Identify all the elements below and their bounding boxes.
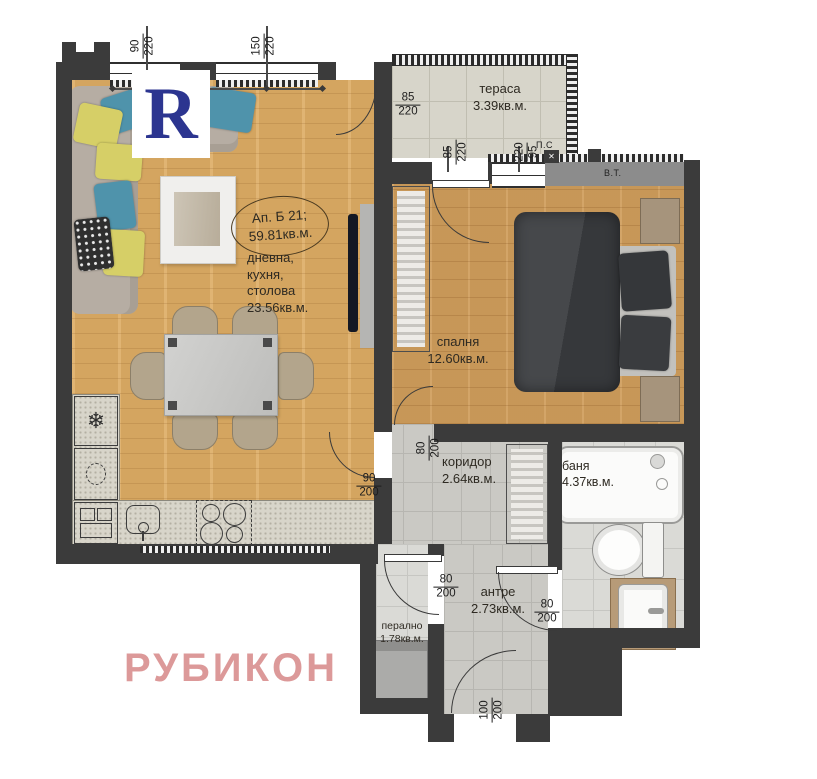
wall-top-a (56, 62, 112, 80)
dining-chair (130, 352, 166, 400)
living-label-line: дневна, (247, 250, 308, 267)
table-leg (263, 401, 272, 410)
nightstand (640, 198, 680, 244)
sofa-pillow (203, 86, 257, 133)
terrace-label: тераса 3.39кв.м. (440, 81, 560, 114)
toilet-tank (642, 522, 664, 578)
tv-unit (360, 204, 374, 348)
dim-living-door: 90200 (356, 473, 381, 500)
laundry-label: перално 1.78кв.м. (378, 620, 426, 647)
fridge-snowflake-icon: ❄ (87, 408, 105, 433)
washing-machine (374, 640, 428, 700)
floor-drain-icon: ✕ (544, 150, 559, 163)
dim-window-2: 150220 (251, 33, 278, 58)
wall-entrance-left (428, 714, 454, 742)
terrace-area: 3.39кв.м. (440, 98, 560, 115)
table-leg (168, 338, 177, 347)
burner-icon (202, 504, 220, 522)
dim-terrace-door: 85220 (395, 92, 420, 119)
terrace-door-opening (336, 62, 374, 80)
living-label-line: столова (247, 283, 308, 300)
wall-notch-cut (76, 42, 94, 52)
coffee-table-top (174, 192, 220, 246)
nightstand (640, 376, 680, 422)
oven (74, 502, 118, 544)
dining-chair (232, 414, 278, 450)
agency-logo-letter: R (144, 72, 197, 157)
wall-living-partition (374, 62, 392, 432)
toilet (592, 524, 646, 576)
living-room-label: дневна, кухня, столова 23.56кв.м. (247, 250, 308, 317)
dim-bedroom-door: 80200 (416, 435, 443, 460)
wall-right-outer (684, 160, 700, 648)
bedroom-area: 12.60кв.м. (412, 351, 504, 368)
bed-pillow (619, 315, 672, 372)
burner-icon (200, 522, 223, 545)
dim-terrace-window-1: 85220 (443, 139, 470, 164)
cooktop (196, 500, 252, 546)
bathroom-label: баня 4.37кв.м. (562, 458, 614, 490)
antre-name: антре (452, 584, 544, 601)
faucet-stem-icon (142, 531, 144, 541)
bathroom-name: баня (562, 458, 614, 474)
vent-shaft-label: В.Т. (604, 168, 622, 178)
dishwasher-icon (86, 463, 106, 485)
basin-faucet-icon (648, 608, 664, 614)
wall-bath-bottom (548, 628, 700, 648)
fridge: ❄ (74, 396, 118, 446)
dining-table (164, 334, 278, 416)
dim-window-1: 90220 (130, 33, 157, 58)
kitchen-sink (120, 502, 166, 542)
dining-chair (172, 414, 218, 450)
bedroom-label: спалня 12.60кв.м. (412, 334, 504, 367)
laundry-area: 1.78кв.м. (378, 633, 426, 646)
wall-bedroom-top-pier (392, 162, 432, 184)
apartment-area: 59.81кв.м. (248, 224, 313, 246)
floor-plan: ❄ (0, 0, 817, 779)
tv-icon (348, 214, 358, 332)
living-label-area: 23.56кв.м. (247, 300, 308, 317)
laundry-name: перално (378, 620, 426, 633)
antre-area: 2.73кв.м. (452, 601, 544, 618)
kitchen-window-hatch (140, 546, 330, 553)
bathtub-faucet-icon (656, 478, 668, 490)
wall-left-outer (56, 62, 72, 560)
wall-terrace-top (392, 54, 578, 66)
oven-burner-icon (97, 508, 112, 521)
bathtub-drain-icon (650, 454, 665, 469)
table-leg (263, 338, 272, 347)
wall-entrance-right (516, 714, 550, 742)
oven-burner-icon (80, 508, 95, 521)
wall-bath-left (548, 424, 562, 570)
wall-terrace-right (566, 54, 578, 166)
wall-below-bathroom (548, 648, 622, 716)
burner-icon (226, 526, 243, 543)
floor-drain-label: П.С (536, 140, 553, 150)
wall-laundry-left (360, 544, 376, 714)
living-door-opening (374, 432, 392, 478)
wardrobe (392, 186, 430, 352)
bathroom-area: 4.37кв.м. (562, 474, 614, 490)
table-leg (168, 401, 177, 410)
bedroom-name: спалня (412, 334, 504, 351)
dining-chair (278, 352, 314, 400)
terrace-name: тераса (440, 81, 560, 98)
living-label-line: кухня, (247, 267, 308, 284)
corridor-name: коридор (442, 454, 496, 471)
sofa-pillow-patterned (73, 216, 114, 271)
bed-duvet (514, 212, 620, 392)
bed-pillow (618, 250, 672, 311)
corridor-area: 2.64кв.м. (442, 471, 496, 488)
corridor-closet (506, 444, 548, 544)
corridor-label: коридор 2.64кв.м. (442, 454, 496, 487)
oven-door-icon (80, 523, 112, 538)
dim-entrance-door: 100200 (479, 697, 506, 722)
agency-logo: R (132, 70, 210, 158)
vent-shaft-marker (588, 149, 601, 162)
wall-laundry-bottom (360, 698, 444, 714)
antre-label: антре 2.73кв.м. (452, 584, 544, 617)
wall-top-pier-2 (318, 62, 336, 80)
burner-icon (223, 503, 246, 526)
watermark: РУБИКОН (124, 646, 338, 691)
dishwasher (74, 448, 118, 500)
